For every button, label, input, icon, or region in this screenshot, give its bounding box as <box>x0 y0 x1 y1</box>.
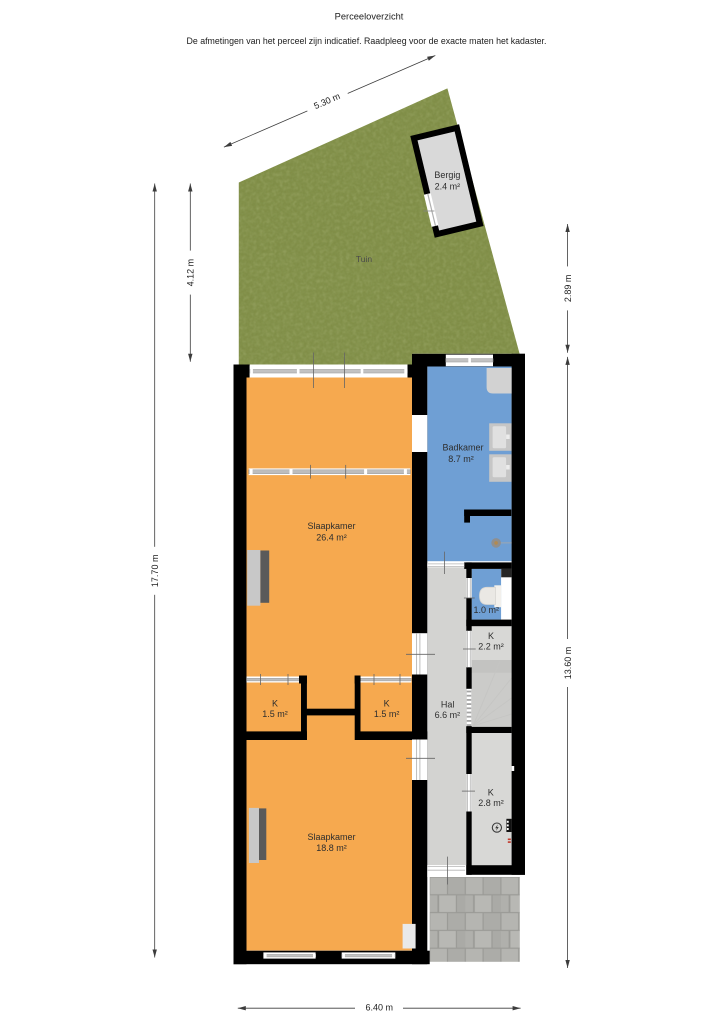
svg-text:13.60 m: 13.60 m <box>563 647 573 680</box>
svg-text:K: K <box>488 631 494 641</box>
svg-text:17.70 m: 17.70 m <box>150 555 160 588</box>
svg-text:Badkamer: Badkamer <box>442 443 483 453</box>
svg-text:Bergig: Bergig <box>434 170 460 180</box>
svg-text:2.4 m²: 2.4 m² <box>435 181 461 191</box>
svg-text:1.5 m²: 1.5 m² <box>262 709 288 719</box>
svg-text:K: K <box>384 698 390 708</box>
svg-text:De afmetingen van het perceel: De afmetingen van het perceel zijn indic… <box>187 36 547 46</box>
svg-text:26.4 m²: 26.4 m² <box>316 532 347 542</box>
svg-text:18.8 m²: 18.8 m² <box>316 843 347 853</box>
svg-text:1.5 m²: 1.5 m² <box>374 709 400 719</box>
svg-text:6.40 m: 6.40 m <box>365 1002 393 1012</box>
svg-text:2.89 m: 2.89 m <box>563 275 573 303</box>
svg-text:Perceeloverzicht: Perceeloverzicht <box>335 11 404 21</box>
svg-text:Slaapkamer: Slaapkamer <box>307 832 355 842</box>
svg-text:4.12 m: 4.12 m <box>185 259 195 287</box>
svg-text:K: K <box>488 787 494 797</box>
svg-text:6.6 m²: 6.6 m² <box>435 710 461 720</box>
svg-text:2.2 m²: 2.2 m² <box>478 642 504 652</box>
svg-text:2.8 m²: 2.8 m² <box>478 798 504 808</box>
svg-text:8.7 m²: 8.7 m² <box>448 454 474 464</box>
svg-text:Slaapkamer: Slaapkamer <box>307 521 355 531</box>
svg-text:1.0 m²: 1.0 m² <box>474 605 500 615</box>
svg-text:Tuin: Tuin <box>356 254 372 264</box>
svg-text:Hal: Hal <box>441 700 455 710</box>
svg-text:K: K <box>272 698 278 708</box>
